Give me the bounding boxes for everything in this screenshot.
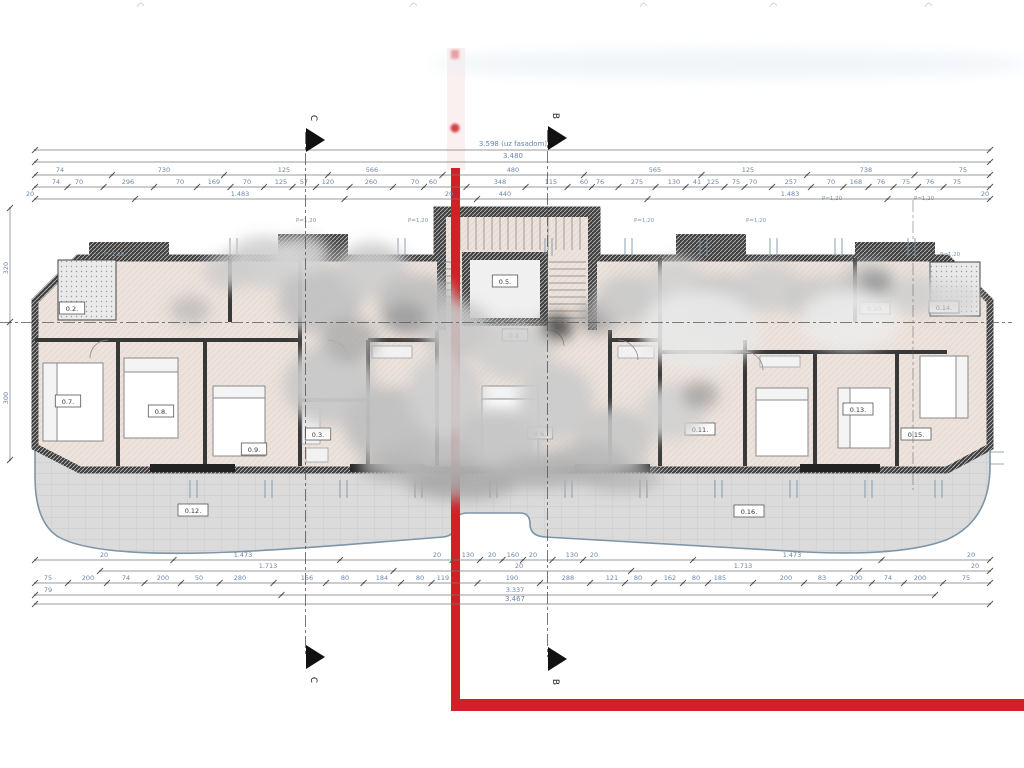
dim-tick-dot	[400, 582, 402, 584]
red-line-horizontal	[451, 699, 1024, 711]
core-wall	[437, 208, 597, 217]
dim-tick-dot	[349, 186, 351, 188]
parapet-label: P=1,20	[940, 252, 961, 258]
dim-label: 1.713	[734, 562, 753, 570]
dim-tick-dot	[339, 559, 341, 561]
smudge	[541, 314, 573, 340]
dim-label: 3.467	[505, 595, 525, 603]
dim-tick-dot	[67, 186, 69, 188]
dim-tick-dot	[393, 570, 395, 572]
dim-tick-dot	[989, 570, 991, 572]
dim-label: 50	[195, 574, 203, 582]
dim-label: 190	[506, 574, 518, 582]
dim-label: 76	[596, 178, 604, 186]
dim-label: 566	[366, 166, 378, 174]
dim-tick-dot	[327, 174, 329, 176]
dim-tick-dot	[583, 174, 585, 176]
dim-tick-dot	[893, 186, 895, 188]
right-edge-ticks	[990, 452, 1004, 464]
dim-label: 20	[971, 562, 979, 570]
smudge	[800, 290, 900, 350]
red-top-tick	[451, 50, 459, 59]
dim-tick-dot	[34, 594, 36, 596]
red-dot	[451, 124, 460, 133]
dim-label: 200	[780, 574, 792, 582]
dim-label: 76	[926, 178, 934, 186]
wc	[306, 448, 328, 462]
dim-tick-dot	[292, 186, 294, 188]
dim-tick-dot	[180, 582, 182, 584]
dim-tick-dot	[315, 186, 317, 188]
bed	[838, 388, 890, 448]
bed	[756, 388, 808, 456]
dim-tick-dot	[273, 582, 275, 584]
dim-label: 200	[850, 574, 862, 582]
dim-label: 480	[507, 166, 519, 174]
room-label: 0.8.	[155, 408, 167, 416]
dim-tick-dot	[173, 559, 175, 561]
smudge	[640, 290, 760, 370]
dim-tick-dot	[34, 186, 36, 188]
dim-tick-dot	[442, 174, 444, 176]
dim-label: 156	[301, 574, 313, 582]
sliding-door	[800, 464, 880, 472]
parapet-label: P=1,20	[746, 218, 767, 224]
dim-label: 75	[953, 178, 961, 186]
dim-tick-dot	[989, 174, 991, 176]
dim-tick-dot	[34, 161, 36, 163]
dim-label: 125	[742, 166, 754, 174]
room-label: 0.5.	[499, 278, 511, 286]
room-label: 0.12.	[185, 507, 202, 515]
smudge	[359, 454, 431, 482]
dim-tick-dot	[477, 582, 479, 584]
dim-label: 83	[818, 574, 826, 582]
dim-label: 348	[494, 178, 506, 186]
section-arrow-c-top	[306, 128, 325, 152]
dim-tick-dot	[624, 582, 626, 584]
dim-tick-dot	[99, 570, 101, 572]
dim-label: 75	[959, 166, 967, 174]
dim-label: 280	[234, 574, 246, 582]
dim-tick-dot	[34, 174, 36, 176]
dim-label: 41	[693, 178, 701, 186]
dim-label: 320	[2, 262, 10, 274]
dim-label: 1.473	[234, 551, 253, 559]
dim-label: 125	[278, 166, 290, 174]
dim-tick-dot	[803, 582, 805, 584]
dim-tick-dot	[111, 174, 113, 176]
dim-label: 20	[433, 551, 441, 559]
dim-label: 121	[606, 574, 618, 582]
dim-tick-dot	[903, 582, 905, 584]
dim-tick-dot	[630, 570, 632, 572]
dimension-chains-bottom: 201.473201302016020130201.473201.713201.…	[32, 551, 993, 607]
dim-tick-dot	[989, 603, 991, 605]
dim-tick-dot	[771, 186, 773, 188]
parapet-label: P=1,20	[408, 218, 429, 224]
dim-tick-dot	[917, 186, 919, 188]
dim-tick-dot	[479, 559, 481, 561]
dim-tick-dot	[591, 186, 593, 188]
dim-tick-dot	[134, 198, 136, 200]
dim-label: 120	[322, 178, 334, 186]
dim-label: 200	[157, 574, 169, 582]
room-label: 0.13.	[850, 406, 867, 414]
dim-tick-dot	[647, 198, 649, 200]
dim-label: 1.483	[781, 190, 800, 198]
dim-label: 125	[707, 178, 719, 186]
dim-label: 115	[545, 178, 557, 186]
dim-tick-dot	[363, 582, 365, 584]
dim-label: 130	[462, 551, 474, 559]
left-dimension: 320300	[2, 205, 13, 463]
section-letter-b-bottom: B	[550, 679, 560, 685]
dim-label: 76	[877, 178, 885, 186]
dim-tick-dot	[476, 198, 478, 200]
section-letter-b-top: B	[550, 113, 560, 119]
dim-tick-dot	[838, 582, 840, 584]
dim-tick-dot	[522, 559, 524, 561]
dim-tick-dot	[9, 207, 11, 209]
dim-label: 80	[634, 574, 642, 582]
dim-tick-dot	[692, 559, 694, 561]
dim-label: 20	[529, 551, 537, 559]
dim-tick-dot	[704, 186, 706, 188]
dim-label: 60	[580, 178, 588, 186]
dim-label: 130	[566, 551, 578, 559]
dim-tick-dot	[810, 186, 812, 188]
dim-tick-dot	[724, 186, 726, 188]
dim-label: 257	[785, 178, 797, 186]
dim-tick-dot	[881, 559, 883, 561]
dim-tick-dot	[868, 186, 870, 188]
section-letter-c-bottom: C	[308, 677, 318, 683]
dim-tick-dot	[655, 186, 657, 188]
top-edge-marks	[137, 3, 932, 7]
bed	[920, 356, 968, 418]
dim-label: 75	[902, 178, 910, 186]
parapet-label: P=1,20	[634, 218, 655, 224]
dim-tick-dot	[887, 198, 889, 200]
dim-tick-dot	[934, 594, 936, 596]
section-arrow-b-bottom	[548, 647, 567, 671]
dim-tick-dot	[153, 186, 155, 188]
room-label: 0.16.	[741, 508, 758, 516]
dim-label: 1.713	[259, 562, 278, 570]
room-label: 0.15.	[908, 431, 925, 439]
dim-label: 20	[590, 551, 598, 559]
dim-label: 20	[100, 551, 108, 559]
dim-label: 730	[158, 166, 170, 174]
dim-tick-dot	[989, 559, 991, 561]
dim-tick-dot	[989, 161, 991, 163]
dim-label: 185	[714, 574, 726, 582]
dim-label: 75	[44, 574, 52, 582]
dim-tick-dot	[196, 186, 198, 188]
floor-plan-canvas: P=1,20P=1,20P=1,20P=1,20P=1,20P=1,20P=1,…	[0, 0, 1024, 768]
shaft-wall	[462, 252, 548, 260]
dim-tick-dot	[707, 582, 709, 584]
dim-tick-dot	[106, 582, 108, 584]
dim-tick-dot	[423, 186, 425, 188]
top-edge-mark	[137, 3, 144, 7]
dim-label: 70	[411, 178, 419, 186]
dim-label: 200	[914, 574, 926, 582]
dim-tick-dot	[392, 186, 394, 188]
room-label: 0.9.	[248, 446, 260, 454]
dim-tick-dot	[618, 186, 620, 188]
dim-label: 74	[56, 166, 64, 174]
smudge	[931, 282, 979, 318]
dim-label: 75	[962, 574, 970, 582]
dim-label: 70	[243, 178, 251, 186]
dim-label: 70	[827, 178, 835, 186]
dim-tick-dot	[989, 149, 991, 151]
dim-tick-dot	[144, 582, 146, 584]
dim-tick-dot	[943, 186, 945, 188]
wardrobe	[760, 356, 800, 367]
dim-tick-dot	[653, 582, 655, 584]
dim-tick-dot	[914, 174, 916, 176]
smudge	[170, 296, 210, 324]
dim-tick-dot	[219, 582, 221, 584]
dim-tick-dot	[466, 186, 468, 188]
dim-tick-dot	[871, 582, 873, 584]
dim-tick-dot	[843, 186, 845, 188]
dim-tick-dot	[502, 559, 504, 561]
dim-label: 70	[176, 178, 184, 186]
dim-label: 300	[2, 392, 10, 404]
dim-tick-dot	[589, 582, 591, 584]
dim-label: 80	[416, 574, 424, 582]
floor-plan-screenshot: P=1,20P=1,20P=1,20P=1,20P=1,20P=1,20P=1,…	[0, 0, 1024, 768]
dim-label: 60	[429, 178, 437, 186]
room-label: 0.7.	[62, 398, 74, 406]
dim-label: 1.473	[783, 551, 802, 559]
dim-tick-dot	[34, 149, 36, 151]
dim-tick-dot	[344, 198, 346, 200]
parapet-label: P=1,20	[104, 252, 125, 258]
top-edge-mark	[640, 3, 647, 7]
dim-label: 169	[208, 178, 220, 186]
section-letter-c-top: C	[308, 115, 318, 121]
dim-tick-dot	[539, 582, 541, 584]
dim-tick-dot	[582, 559, 584, 561]
dim-label: 168	[850, 178, 862, 186]
dim-tick-dot	[281, 594, 283, 596]
shaft-wall	[540, 252, 548, 326]
dim-tick-dot	[752, 582, 754, 584]
dim-label: 184	[376, 574, 388, 582]
dim-tick-dot	[230, 186, 232, 188]
dim-tick-dot	[223, 174, 225, 176]
dim-tick-dot	[744, 186, 746, 188]
dim-label: 296	[122, 178, 134, 186]
dim-tick-dot	[858, 570, 860, 572]
dim-label: 20	[515, 562, 523, 570]
dim-label: 57	[300, 178, 308, 186]
dim-label: 3.480	[503, 152, 523, 160]
dim-label: 162	[664, 574, 676, 582]
dim-label: 200	[82, 574, 94, 582]
wardrobe	[372, 346, 412, 358]
dim-tick-dot	[989, 582, 991, 584]
room-label: 0.2.	[66, 305, 78, 313]
dim-tick-dot	[567, 186, 569, 188]
dim-label: 20	[981, 190, 989, 198]
section-arrow-b-top	[548, 126, 567, 150]
smudge	[383, 302, 427, 334]
dim-label: 20	[488, 551, 496, 559]
smudge	[204, 254, 252, 290]
dim-tick-dot	[34, 582, 36, 584]
dim-tick-dot	[701, 174, 703, 176]
dim-label: 74	[884, 574, 892, 582]
dim-label: 125	[275, 178, 287, 186]
dim-tick-dot	[325, 582, 327, 584]
smudge	[497, 456, 593, 488]
dim-tick-dot	[452, 559, 454, 561]
dim-tick-dot	[989, 186, 991, 188]
dim-label: 275	[631, 178, 643, 186]
top-edge-mark	[925, 3, 932, 7]
dim-label: 20	[445, 190, 453, 198]
smudge	[580, 464, 660, 492]
dim-label: 70	[749, 178, 757, 186]
top-edge-mark	[410, 3, 417, 7]
room-label: 0.3.	[312, 431, 324, 439]
sliding-door	[150, 464, 235, 472]
dim-label: 260	[365, 178, 377, 186]
dim-label: 160	[507, 551, 519, 559]
dim-tick-dot	[103, 186, 105, 188]
dim-tick-dot	[552, 559, 554, 561]
dim-label: 119	[437, 574, 449, 582]
dim-label: 74	[122, 574, 130, 582]
bed	[124, 358, 178, 438]
dim-label: 130	[668, 178, 680, 186]
dim-tick-dot	[942, 582, 944, 584]
smudge	[322, 318, 378, 362]
top-edge-mark	[770, 3, 777, 7]
dim-label: 70	[75, 178, 83, 186]
dim-label: 20	[967, 551, 975, 559]
dim-tick-dot	[67, 582, 69, 584]
parapet-label: P=1,20	[296, 218, 317, 224]
dim-label: 20	[26, 190, 34, 198]
dim-label: 738	[860, 166, 872, 174]
dim-tick-dot	[431, 582, 433, 584]
dim-tick-dot	[989, 198, 991, 200]
dim-tick-dot	[9, 459, 11, 461]
dim-tick-dot	[685, 186, 687, 188]
dim-label: 565	[649, 166, 661, 174]
dim-label: 75	[732, 178, 740, 186]
dim-label: 3.598 (uz fasadom)	[479, 140, 548, 148]
dim-tick-dot	[34, 603, 36, 605]
dim-tick-dot	[34, 198, 36, 200]
dim-label: 288	[562, 574, 574, 582]
dim-tick-dot	[682, 582, 684, 584]
dim-tick-dot	[263, 186, 265, 188]
dim-tick-dot	[34, 559, 36, 561]
section-arrow-c-bottom	[306, 645, 325, 669]
dim-label: 3.337	[506, 586, 525, 594]
dim-label: 80	[341, 574, 349, 582]
bay-wall	[676, 234, 746, 258]
dim-label: 80	[692, 574, 700, 582]
dim-label: 440	[499, 190, 511, 198]
smudge	[270, 235, 330, 275]
dim-tick-dot	[525, 186, 527, 188]
smudge	[430, 49, 1024, 79]
dim-label: 74	[52, 178, 60, 186]
dimension-chains-top: 3.598 (uz fasadom)3.48074730125566480565…	[26, 140, 993, 202]
dim-label: 1.483	[231, 190, 250, 198]
dim-label: 79	[44, 586, 52, 594]
dim-tick-dot	[806, 174, 808, 176]
smudge	[682, 381, 718, 409]
